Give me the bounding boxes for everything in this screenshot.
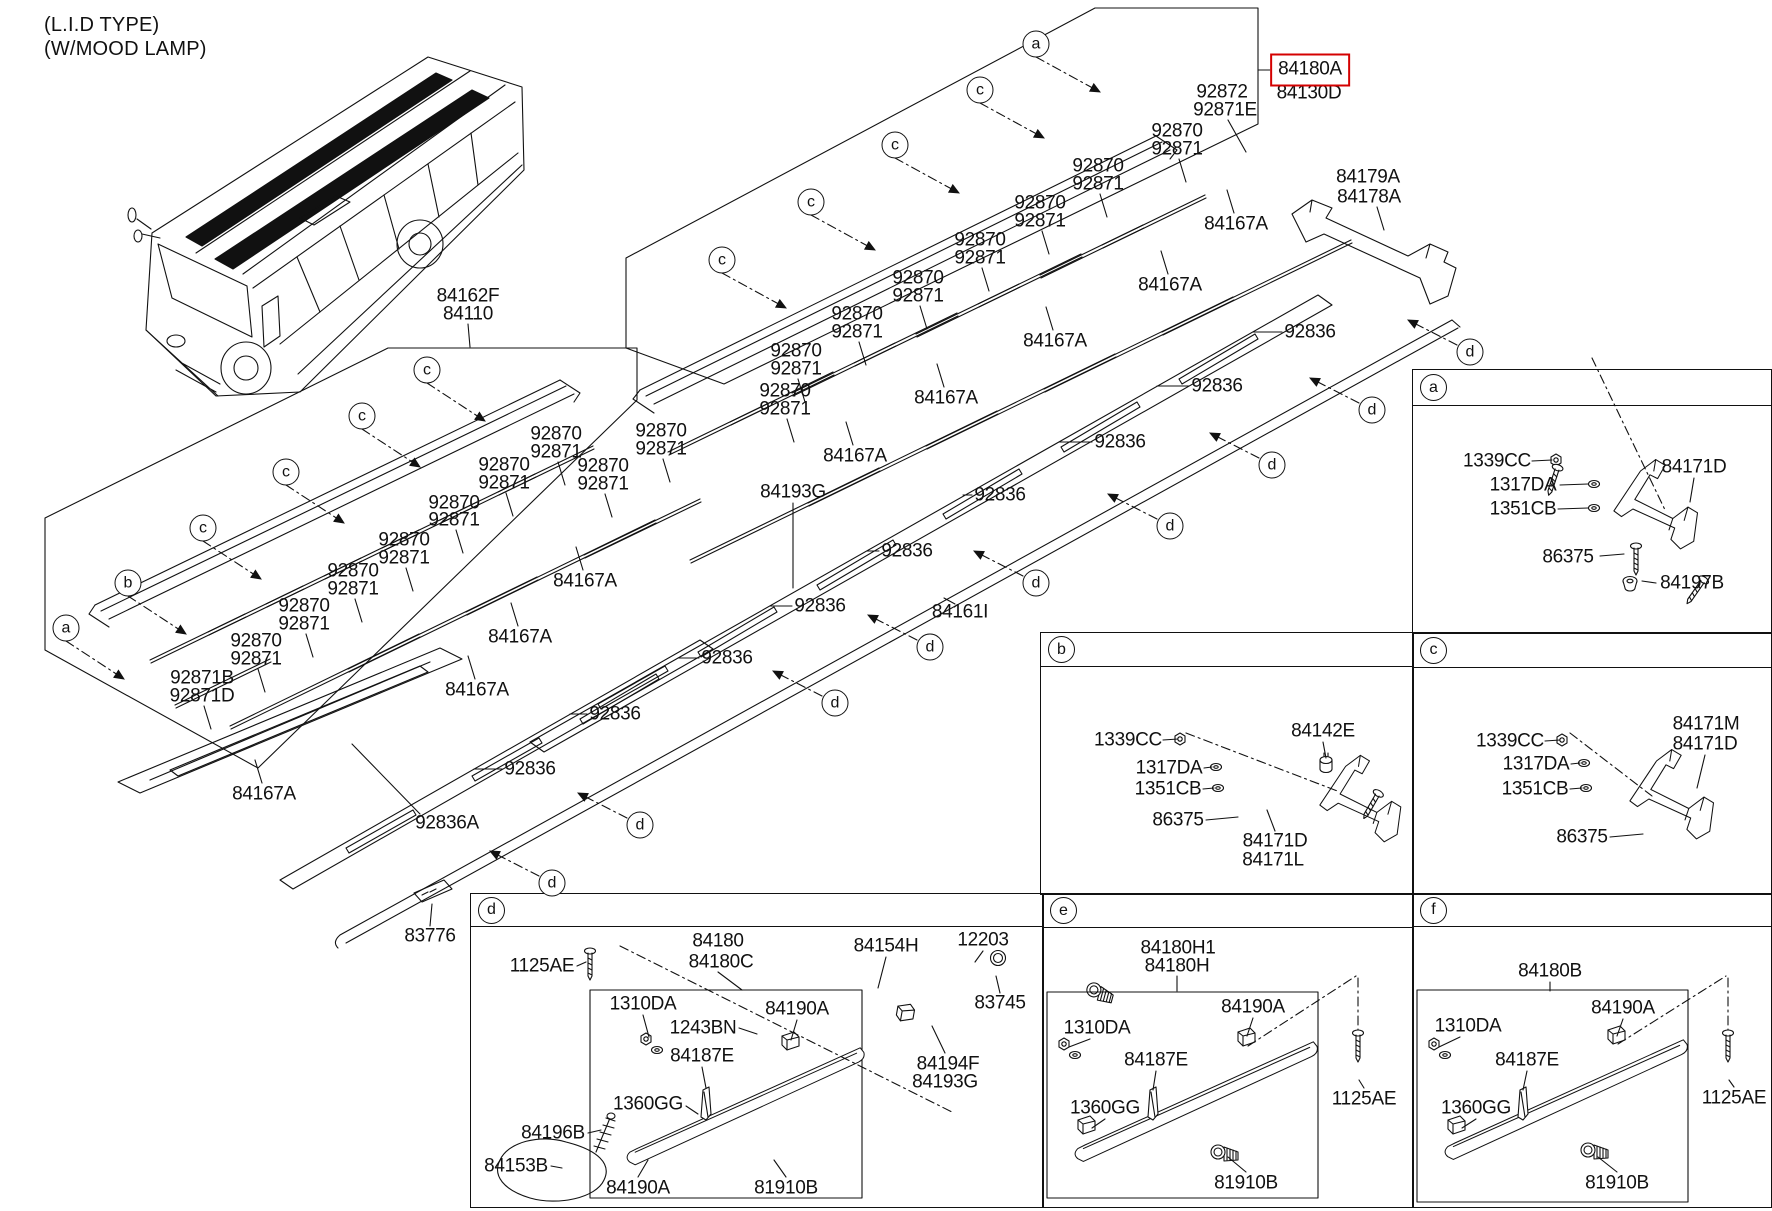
part-label: 84180H [1145,957,1210,976]
part-label: 92836 [1284,323,1335,342]
part-label: 92871 [1151,140,1202,159]
part-label: 84153B [484,1157,548,1176]
part-label: 81910B [1214,1174,1278,1193]
part-label: 1317DA [1503,755,1570,774]
part-label: 1310DA [610,995,677,1014]
panel-header [1043,894,1413,928]
detail-panel-b: b [1040,632,1414,895]
part-label: 84142E [1291,722,1355,741]
callout-circle-a: a [1023,31,1050,58]
part-label: 92836 [589,705,640,724]
detail-panel-e: e [1042,893,1414,1208]
callout-circle-b: b [115,570,142,597]
part-label: 1243BN [670,1019,737,1038]
part-label: 84193G [760,483,826,502]
highlighted-part-number[interactable]: 84180A [1270,54,1350,87]
part-label: 1360GG [1070,1099,1140,1118]
callout-circle-c: c [882,132,909,159]
part-label: 1351CB [1135,780,1202,799]
part-label: 92871 [327,580,378,599]
part-label: 84171D [1673,735,1738,754]
part-label: 92871 [892,287,943,306]
part-label: 84187E [1495,1051,1559,1070]
part-label: 1351CB [1502,780,1569,799]
part-label: 92836 [701,649,752,668]
detail-panel-a: a [1412,369,1772,634]
part-label: 84180B [1518,962,1582,981]
part-label: 84190A [606,1179,670,1198]
panel-letter-c: c [1420,637,1447,664]
bus-illustration [128,57,524,396]
callout-circle-c: c [190,515,217,542]
title-line-2: (W/MOOD LAMP) [44,38,207,62]
part-label: 92871 [230,650,281,669]
part-label: 1360GG [1441,1099,1511,1118]
part-label: 92836 [1191,377,1242,396]
part-label: 1310DA [1435,1017,1502,1036]
panel-letter-f: f [1420,897,1447,924]
callout-circle-d: d [1359,397,1386,424]
parts-diagram-page: (L.I.D TYPE) (W/MOOD LAMP) 84180A 84162F… [0,0,1772,1211]
part-label: 81910B [1585,1174,1649,1193]
part-label: 84171D [1243,832,1308,851]
part-label: 83776 [404,927,455,946]
callout-circle-a: a [53,615,80,642]
part-label: 81910B [754,1179,818,1198]
callout-circle-c: c [273,459,300,486]
panel-letter-d: d [478,897,505,924]
part-label: 92871 [278,615,329,634]
part-label: 84197B [1660,574,1724,593]
part-label: 84167A [553,572,617,591]
panel-letter-e: e [1050,897,1077,924]
part-label: 84161I [932,603,988,622]
part-label: 92871 [1014,212,1065,231]
part-label: 84167A [488,628,552,647]
callout-circle-c: c [967,77,994,104]
part-label: 86375 [1152,811,1203,830]
part-label: 92871 [478,474,529,493]
part-label: 84167A [445,681,509,700]
part-label: 86375 [1556,828,1607,847]
part-label: 1339CC [1476,732,1544,751]
top-assembly-box [626,8,1258,384]
part-label: 1339CC [1094,731,1162,750]
panel-letter-b: b [1048,636,1075,663]
part-label: 84187E [670,1047,734,1066]
part-label: 12203 [957,931,1008,950]
part-label: 84171L [1242,851,1304,870]
part-label: 92871 [954,249,1005,268]
panel-header [1413,894,1771,927]
part-label: 92871E [1193,101,1257,120]
panel-header [1413,633,1771,668]
part-label: 83745 [974,994,1025,1013]
roof-bracket-art [1292,200,1456,304]
part-label: 84190A [1221,998,1285,1017]
callout-circle-c: c [709,247,736,274]
part-label: 84196B [521,1124,585,1143]
panel-header [1413,370,1771,406]
part-label: 1317DA [1136,759,1203,778]
part-label: 1125AE [1702,1089,1766,1108]
callout-circle-d: d [1259,452,1286,479]
part-label: 92871 [1072,175,1123,194]
part-label: 92836 [794,597,845,616]
part-label: 84154H [854,937,919,956]
part-label: 84180 [692,932,743,951]
part-label: 92871 [530,443,581,462]
panel-letter-a: a [1420,374,1447,401]
part-label: 92836 [881,542,932,561]
part-label: 92871 [759,400,810,419]
title-line-1: (L.I.D TYPE) [44,14,207,38]
part-label: 1310DA [1064,1019,1131,1038]
callout-circle-c: c [414,357,441,384]
part-label: 84180C [689,953,754,972]
part-label: 1125AE [1332,1090,1396,1109]
part-label: 84179A [1336,168,1400,187]
part-label: 1317DA [1490,476,1557,495]
callout-circle-d: d [917,634,944,661]
part-label: 92871D [170,687,235,706]
part-label: 92836 [504,760,555,779]
part-label: 1360GG [613,1095,683,1114]
part-label: 1339CC [1463,452,1531,471]
part-label: 84187E [1124,1051,1188,1070]
panel-header [471,894,1043,927]
callout-circle-d: d [1457,339,1484,366]
left-assembly-box [45,348,637,768]
part-label: 92836A [415,814,479,833]
part-label: 92871 [770,360,821,379]
part-label: 92871 [831,323,882,342]
part-label: 1351CB [1490,500,1557,519]
part-label: 1125AE [510,957,574,976]
page-title: (L.I.D TYPE) (W/MOOD LAMP) [44,14,207,61]
part-label: 92871 [378,549,429,568]
part-label: 84178A [1337,188,1401,207]
part-label: 86375 [1542,548,1593,567]
part-label: 84190A [1591,999,1655,1018]
panel-header [1041,633,1413,667]
part-label: 84167A [1204,215,1268,234]
callout-circle-d: d [1157,513,1184,540]
detail-panel-f: f [1412,893,1772,1208]
part-label: 92871 [428,511,479,530]
callout-circle-c: c [798,189,825,216]
part-label: 84167A [1138,276,1202,295]
part-label: 92871 [577,475,628,494]
part-label: 84167A [1023,332,1087,351]
part-label: 84193G [912,1073,978,1092]
part-label: 92871 [635,440,686,459]
part-label: 84167A [823,447,887,466]
part-label: 84167A [232,785,296,804]
callout-circle-c: c [349,403,376,430]
part-label: 84171M [1673,715,1740,734]
detail-panel-c: c [1412,632,1772,895]
part-label: 84171D [1662,458,1727,477]
part-label: 84110 [443,305,493,324]
callout-circle-d: d [539,870,566,897]
part-label: 84190A [765,1000,829,1019]
callout-circle-d: d [822,690,849,717]
callout-circle-d: d [627,812,654,839]
part-label: 84167A [914,389,978,408]
part-label: 92836 [974,486,1025,505]
part-label: 92836 [1094,433,1145,452]
callout-circle-d: d [1023,570,1050,597]
